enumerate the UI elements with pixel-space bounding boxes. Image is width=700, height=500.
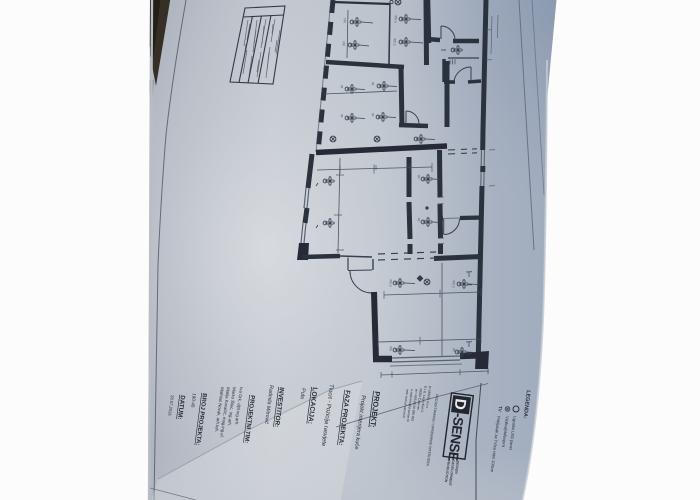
svg-text:95: 95 [371, 82, 375, 86]
svg-text:255: 255 [389, 346, 393, 352]
svg-text:90: 90 [452, 348, 456, 352]
svg-text:600: 600 [374, 165, 378, 171]
svg-text:402.5: 402.5 [392, 38, 397, 46]
svg-text:95: 95 [371, 113, 375, 117]
svg-text:150: 150 [342, 41, 346, 47]
svg-text:95: 95 [340, 85, 344, 89]
svg-text:95: 95 [340, 114, 344, 118]
svg-text:402.5: 402.5 [451, 280, 456, 288]
svg-text:150: 150 [343, 18, 347, 24]
svg-text:D: D [450, 397, 468, 410]
svg-text:402.5: 402.5 [388, 279, 393, 287]
svg-text:80: 80 [417, 175, 421, 179]
svg-text:80: 80 [417, 218, 421, 222]
svg-text:TV: TV [497, 406, 503, 412]
svg-text:402.5: 402.5 [393, 15, 398, 23]
